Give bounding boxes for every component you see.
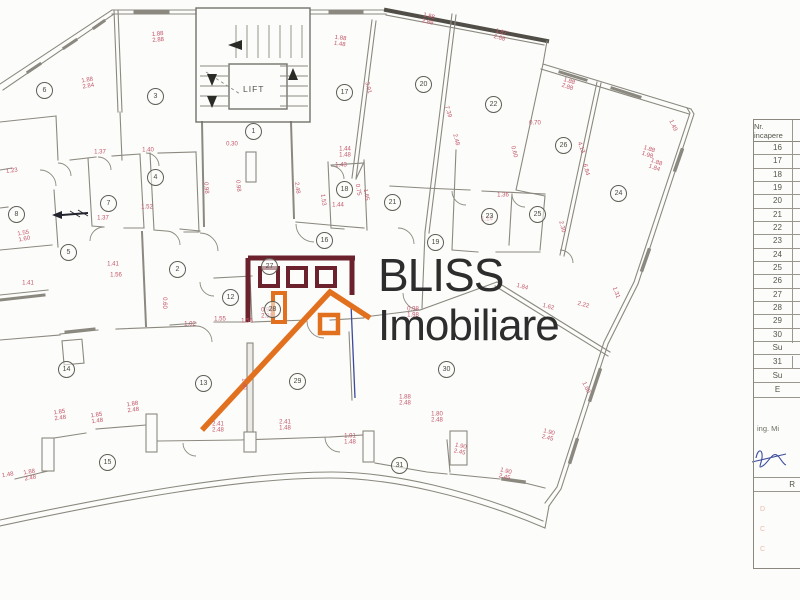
table-row: 24 [754,249,800,262]
dimension-label: 0.98 [234,180,240,192]
room-number-circle: 15 [99,454,116,471]
dimension-label: 1.40 [142,148,154,154]
stamp-mark: C [760,546,765,553]
table-column-divider [792,120,793,343]
dimension-label: 0.98 [202,182,208,194]
room-number-circle: 24 [610,185,627,202]
room-number-circle: 4 [147,169,164,186]
table-room-rows: 161718192021222324252627282930 [754,142,800,342]
bliss-logo-icon [202,258,370,430]
logo-roof [202,292,370,430]
room-number-circle: 25 [529,206,546,223]
table-row: 26 [754,275,800,288]
dimension-label: 1.85 1.48 [90,413,103,426]
dimension-label: 1.44 [332,203,344,209]
dimension-label: 1.88 2.88 [152,32,165,44]
room-number-circle: 20 [415,76,432,93]
table-stamp-cell: DCC [754,492,800,566]
dimension-label: 0.60 [160,297,166,309]
room-number-circle: 26 [555,137,572,154]
dimension-label: 1.56 [241,319,253,325]
room-number-circle: 3 [147,88,164,105]
dimension-label: 1.40 [240,378,246,390]
room-number-circle: 22 [485,96,502,113]
dimension-label: 0.75 [353,184,360,196]
dimension-label: 2.41 1.48 [279,421,291,432]
table-row: 19 [754,182,800,195]
dimension-label: 1.53 [318,194,325,206]
table-section-e: E [754,383,800,398]
room-number-circle: 23 [481,208,498,225]
room-number-circle: 27 [261,258,278,275]
dimension-label: 1.37 [97,216,109,222]
room-number-circle: 13 [195,375,212,392]
dimension-label: 0.70 [529,121,541,127]
dimension-label: 2.41 2.48 [212,423,224,434]
table-row: 21 [754,209,800,222]
logo-brand-subtitle: Imobiliare [378,301,559,351]
room-number-circle: 2 [169,261,186,278]
dimension-label: 1.43 [335,163,347,169]
room-number-circle: 28 [264,301,281,318]
table-row: 17 [754,155,800,168]
table-row: 28 [754,302,800,315]
dimension-label: 1.88 2.48 [399,396,411,407]
dimension-label: 1.85 2.48 [53,410,66,423]
dimension-label: 1.02 [184,322,196,328]
dimension-label: 1.88 2.48 [23,470,36,483]
room-number-circle: 1 [245,123,262,140]
room-number-circle: 29 [289,373,306,390]
table-row: 25 [754,262,800,275]
table-row: 29 [754,315,800,328]
dimension-label: 1.88 2.48 [126,402,139,415]
dimension-label: 1.41 [22,281,34,287]
room-number-circle: 14 [58,361,75,378]
room-area-table: Nr. incapere 161718192021222324252627282… [753,119,800,569]
room-number-circle: 17 [336,84,353,101]
room-number-circle: 18 [336,181,353,198]
stamp-mark: D [760,506,765,513]
room-number-circle: 16 [316,232,333,249]
table-header-line2: incapere [754,132,800,141]
table-header: Nr. incapere [754,120,800,142]
logo-brand-name: BLISS [378,248,503,302]
dimension-label: 1.91 1.48 [344,435,356,446]
dimension-label: 1.41 [107,262,119,268]
table-section-r: R [754,478,800,492]
dimension-label: 1.36 [497,193,509,199]
dimension-label: 0.30 [226,142,238,148]
room-number-circle: 21 [384,194,401,211]
stamp-mark: C [760,526,765,533]
table-row: 22 [754,222,800,235]
dimension-label: 1.55 [214,317,226,323]
table-subtotal-row: Su [754,342,800,355]
room-number-circle: 5 [60,244,77,261]
scanned-floorplan-page: LIFT 12345678121314151617181920212223242… [0,0,800,600]
room-number-circle: 6 [36,82,53,99]
table-column-divider-2 [792,356,793,369]
table-subtotal-row-2: Su [754,369,800,383]
table-executant-cell: ing. Mi [754,398,800,478]
table-row-31: 31 [754,355,800,369]
dimension-label: 1.56 [110,273,122,279]
table-row: 27 [754,289,800,302]
stair-direction-arrows [207,40,298,108]
stairwell [196,8,310,122]
dimension-label: 1.88 2.84 [81,78,94,91]
dimension-label: 1.52 [141,205,153,211]
dimension-label: 1.88 1.48 [333,36,346,49]
pen-annotations [52,210,355,398]
room-number-circle: 7 [100,195,117,212]
dimension-label: 1.55 1.60 [17,231,30,244]
dimension-label: 2.48 [292,182,299,194]
room-number-circle: 8 [8,206,25,223]
table-row: 18 [754,169,800,182]
table-row: 16 [754,142,800,155]
table-row: 23 [754,235,800,248]
room-number-circle: 12 [222,289,239,306]
table-row: 20 [754,195,800,208]
table-row: 30 [754,329,800,342]
dimension-label: 1.44 1.48 [339,148,351,159]
dimension-label: 1.65 [361,189,368,201]
dimension-label: 1.80 2.48 [431,413,443,424]
dimension-label: 1.90 2.45 [453,443,467,456]
lift-label: LIFT [243,84,264,94]
room-number-circle: 31 [391,457,408,474]
dimension-label: 1.37 [94,150,106,156]
room-number-circle: 30 [438,361,455,378]
engineer-name: ing. Mi [757,424,779,433]
